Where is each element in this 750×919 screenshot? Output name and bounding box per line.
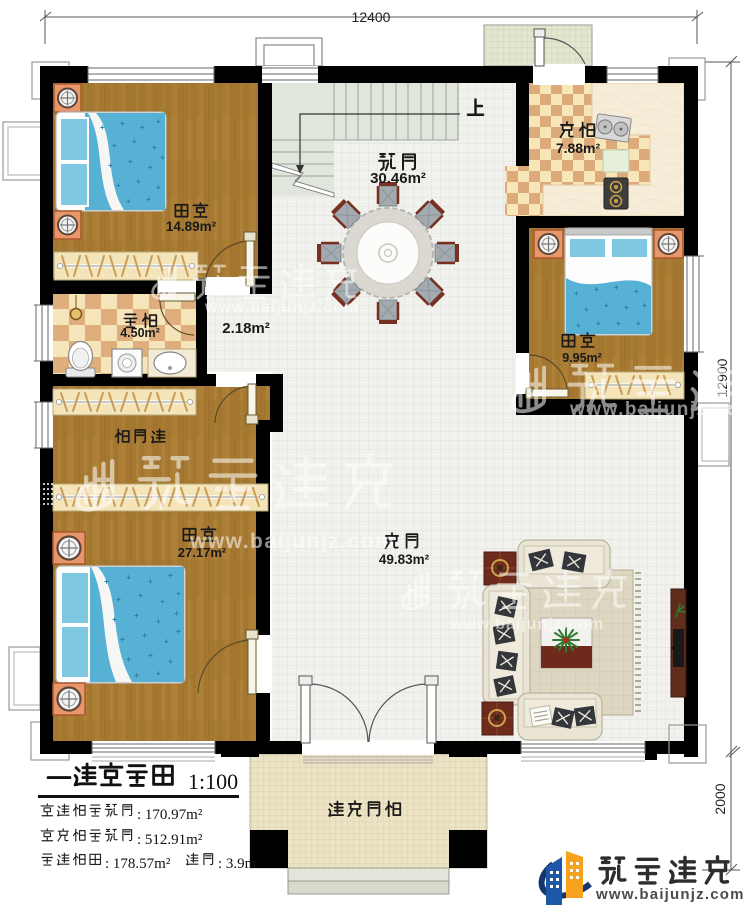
svg-text:+: + bbox=[126, 654, 131, 664]
svg-text:+: + bbox=[128, 157, 133, 166]
svg-text:+: + bbox=[164, 636, 169, 646]
svg-text:+: + bbox=[148, 163, 153, 172]
svg-text:+: + bbox=[146, 195, 151, 204]
svg-text:+: + bbox=[136, 177, 141, 186]
svg-text:+: + bbox=[160, 153, 165, 162]
svg-text:7.88m²: 7.88m² bbox=[556, 140, 601, 156]
svg-text:www.baijunjz.cu: www.baijunjz.cu bbox=[569, 399, 740, 420]
svg-text:+: + bbox=[624, 303, 629, 312]
svg-text:+: + bbox=[142, 630, 147, 640]
svg-text:www.baijunjz.com: www.baijunjz.com bbox=[449, 616, 604, 633]
svg-text:+: + bbox=[140, 123, 145, 132]
svg-text:: 3.9m: : 3.9m bbox=[218, 856, 257, 872]
svg-text:+: + bbox=[176, 588, 181, 598]
svg-text:+: + bbox=[156, 668, 161, 678]
svg-text:: 178.57m²: : 178.57m² bbox=[105, 856, 171, 872]
svg-text:: 512.91m²: : 512.91m² bbox=[137, 832, 203, 848]
svg-text:+: + bbox=[148, 576, 153, 586]
svg-text:+: + bbox=[604, 301, 609, 310]
svg-text:+: + bbox=[174, 608, 179, 618]
svg-text:+: + bbox=[116, 181, 121, 190]
svg-text:+: + bbox=[152, 143, 157, 152]
svg-text:30.46m²: 30.46m² bbox=[370, 170, 426, 187]
svg-text:+: + bbox=[112, 141, 117, 150]
svg-text:+: + bbox=[156, 616, 161, 626]
svg-text:12900: 12900 bbox=[714, 358, 730, 397]
svg-text:+: + bbox=[108, 161, 113, 170]
svg-text:+: + bbox=[594, 285, 599, 294]
svg-text:+: + bbox=[576, 321, 581, 330]
svg-text:+: + bbox=[126, 197, 131, 206]
svg-text:+: + bbox=[168, 570, 173, 580]
svg-text:+: + bbox=[634, 287, 639, 296]
svg-text:+: + bbox=[126, 572, 131, 582]
svg-text:12400: 12400 bbox=[352, 9, 391, 25]
svg-text:+: + bbox=[132, 137, 137, 146]
svg-text:+: + bbox=[134, 670, 139, 680]
svg-text:4.50m²: 4.50m² bbox=[120, 326, 160, 340]
svg-text:+: + bbox=[134, 610, 139, 620]
svg-text:+: + bbox=[584, 305, 589, 314]
svg-text:+: + bbox=[120, 119, 125, 128]
svg-text:+: + bbox=[616, 319, 621, 328]
svg-text:www.baijunjz.com: www.baijunjz.com bbox=[189, 530, 395, 553]
svg-text:www.baijunjz.com: www.baijunjz.com bbox=[595, 886, 745, 903]
svg-text:+: + bbox=[112, 614, 117, 624]
svg-text:+: + bbox=[116, 594, 121, 604]
svg-text:+: + bbox=[160, 596, 165, 606]
svg-text:+: + bbox=[156, 117, 161, 126]
svg-text:+: + bbox=[614, 283, 619, 292]
svg-text:+: + bbox=[120, 634, 125, 644]
svg-text:49.83m²: 49.83m² bbox=[379, 552, 430, 567]
svg-text:+: + bbox=[156, 183, 161, 192]
svg-text:2000: 2000 bbox=[712, 783, 728, 814]
svg-text:2.18m²: 2.18m² bbox=[222, 320, 270, 337]
svg-text:14.89m²: 14.89m² bbox=[166, 219, 217, 234]
svg-text:+: + bbox=[642, 301, 647, 310]
svg-text:9.95m²: 9.95m² bbox=[562, 351, 602, 365]
svg-text:1:100: 1:100 bbox=[188, 769, 238, 794]
svg-text:+: + bbox=[104, 576, 109, 586]
svg-text:+: + bbox=[596, 319, 601, 328]
svg-text:+: + bbox=[138, 590, 143, 600]
svg-text:+: + bbox=[574, 289, 579, 298]
svg-text:+: + bbox=[148, 650, 153, 660]
svg-text:+: + bbox=[636, 319, 641, 328]
svg-text:+: + bbox=[176, 626, 181, 636]
svg-text:+: + bbox=[168, 656, 173, 666]
svg-text:+: + bbox=[100, 123, 105, 132]
svg-text:: 170.97m²: : 170.97m² bbox=[137, 807, 203, 823]
svg-text:www.baijunjz.com: www.baijunjz.com bbox=[204, 299, 359, 316]
